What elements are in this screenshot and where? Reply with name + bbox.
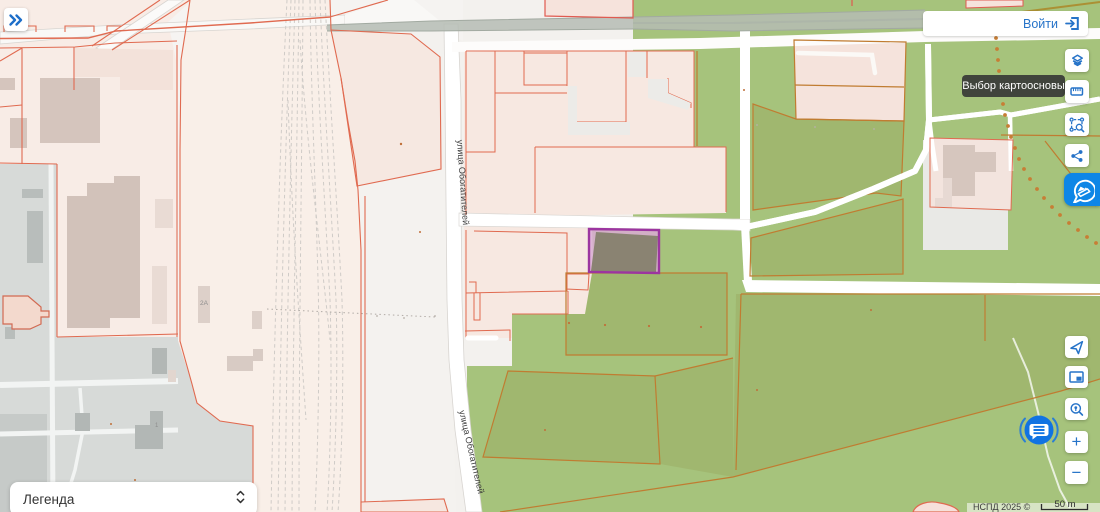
svg-text:2А: 2А [200, 300, 209, 307]
svg-text:50 m: 50 m [1054, 499, 1075, 510]
